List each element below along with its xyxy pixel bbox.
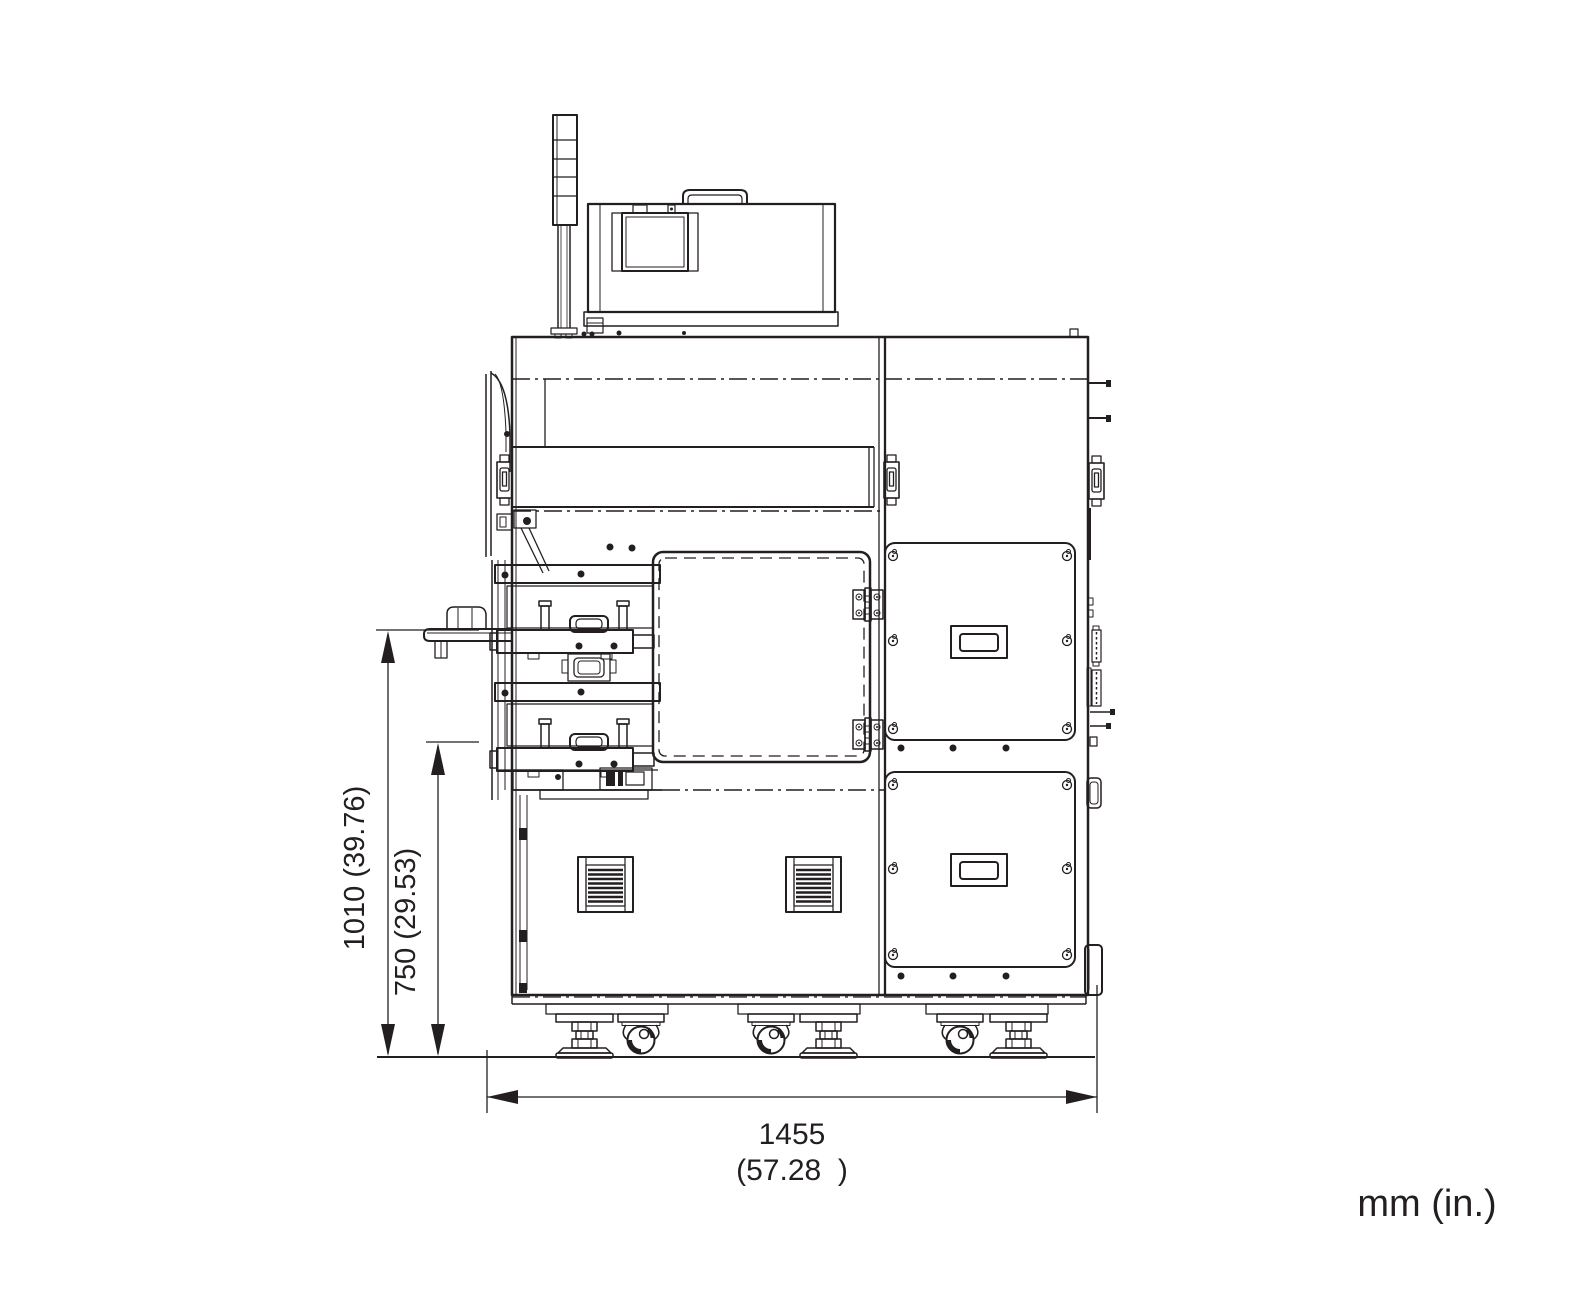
vent-grille-right <box>786 857 841 912</box>
band-latch-middle <box>884 455 899 505</box>
tray-base-steps <box>497 768 658 799</box>
top-cover <box>584 190 838 336</box>
display-screen <box>622 213 688 271</box>
arrowhead-down <box>381 1024 395 1056</box>
dimension-label-height-mid: 750 (29.53) <box>390 848 422 996</box>
carrying-handle <box>683 190 747 204</box>
maintenance-door <box>653 552 883 762</box>
access-panel-upper <box>885 543 1075 752</box>
base-frame <box>512 995 1086 1014</box>
dimension-height-mid <box>426 742 479 1056</box>
machine-body <box>512 329 1088 995</box>
dimension-label-height-overall: 1010 (39.76) <box>339 786 371 950</box>
machine-dimension-drawing: 1010 (39.76) 750 (29.53) 1455 (57.28 ) m… <box>0 0 1576 1301</box>
units-note: mm (in.) <box>1357 1183 1496 1225</box>
vent-grille-left <box>578 857 633 912</box>
leveling-foot-2 <box>800 1014 857 1058</box>
caster-wheel-1 <box>618 1014 664 1054</box>
tower-base <box>551 328 577 334</box>
band-latch-right <box>1089 456 1104 506</box>
band-latch-left <box>497 455 512 505</box>
arrowhead-left <box>487 1090 518 1104</box>
access-panel-lower <box>885 772 1075 980</box>
leveling-foot-1 <box>556 1014 613 1058</box>
tray-rails <box>492 560 505 800</box>
leveling-foot-3 <box>990 1014 1047 1058</box>
tray-coupler <box>562 654 616 681</box>
dimension-label-width-in: (57.28 ) <box>736 1154 848 1187</box>
dimension-label-width-mm: 1455 <box>759 1118 826 1151</box>
left-slide-cover <box>486 371 549 573</box>
arrowhead-down <box>431 1024 445 1056</box>
drawing-canvas: 1010 (39.76) 750 (29.53) 1455 (57.28 ) m… <box>0 0 1576 1301</box>
arrowhead-up <box>431 743 445 775</box>
arrowhead-up <box>381 631 395 663</box>
caster-wheel-3 <box>937 1014 983 1054</box>
arrowhead-right <box>1066 1090 1097 1104</box>
caster-wheel-2 <box>748 1014 794 1054</box>
